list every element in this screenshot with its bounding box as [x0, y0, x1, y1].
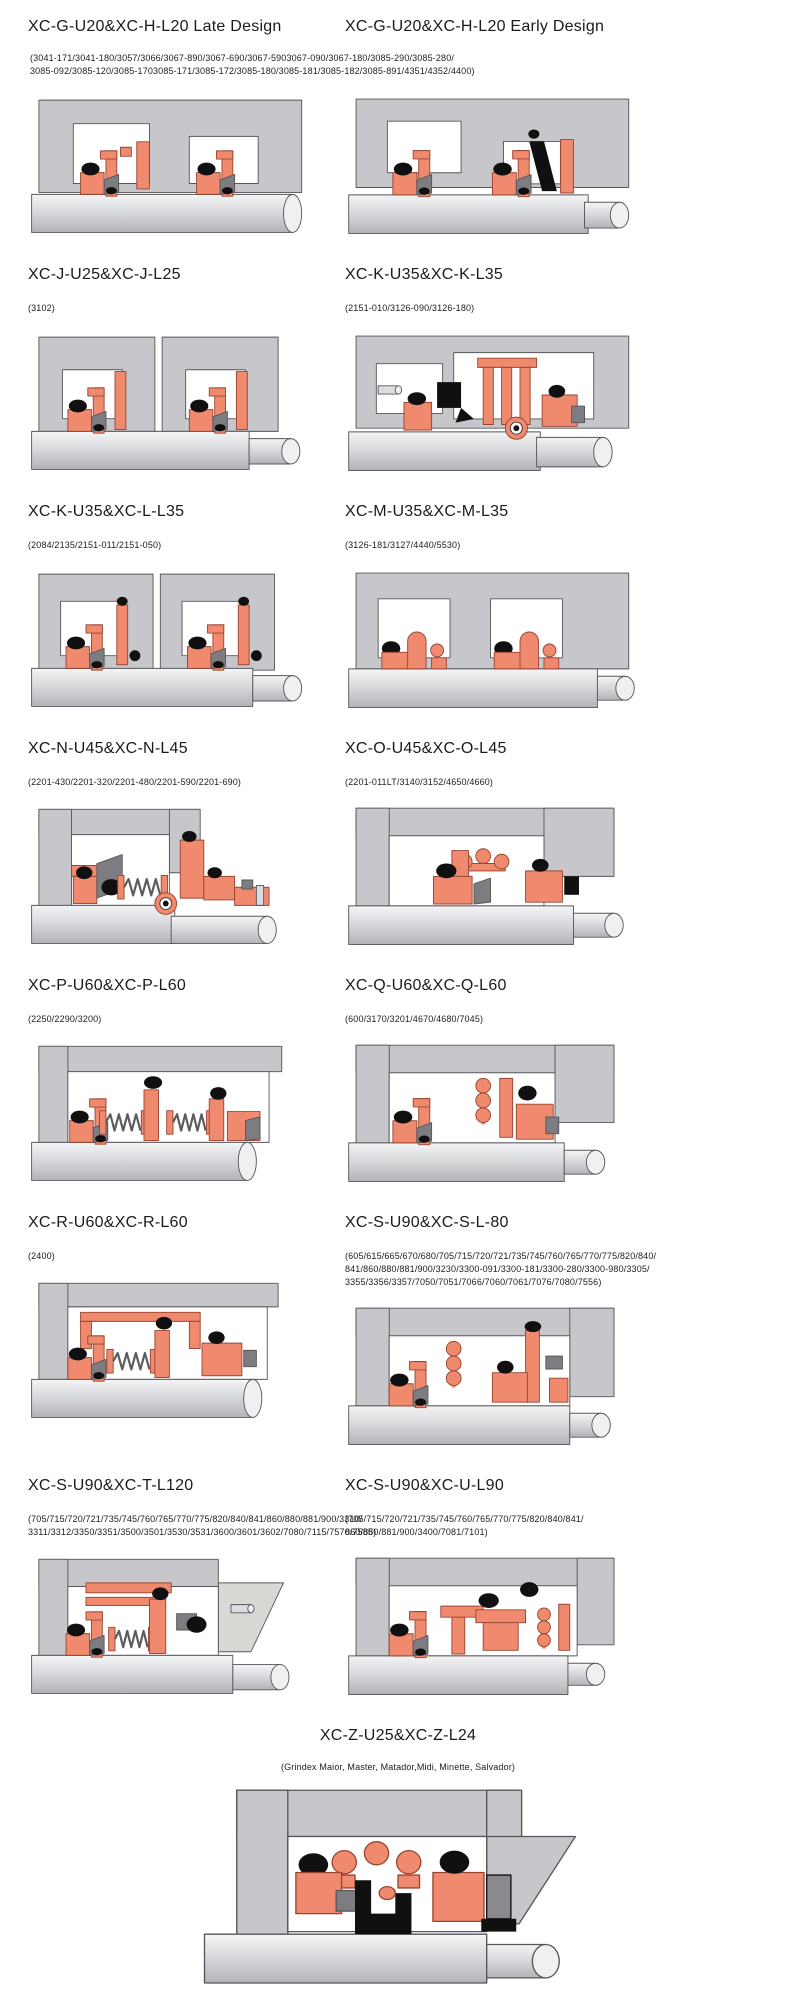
catalog-page: XC-G-U20&XC-H-L20 Late DesignXC-G-U20&XC…	[0, 0, 796, 2012]
seal-xc-u-diagram	[345, 1549, 685, 1701]
section-title: XC-G-U20&XC-H-L20 Late Design	[28, 18, 337, 36]
seal-cross-section	[0, 1780, 796, 1992]
part-numbers: (2151-010/3126-090/3126-180)	[345, 302, 796, 315]
part-numbers: (705/715/720/721/735/745/760/765/770/775…	[345, 1513, 796, 1539]
part-numbers-line: (705/715/720/721/735/745/760/765/770/775…	[28, 1513, 337, 1526]
seal-cross-section	[28, 88, 337, 240]
seal-section-row: XC-G-U20&XC-H-L20 Late DesignXC-G-U20&XC…	[0, 18, 796, 240]
section-title: XC-K-U35&XC-K-L35	[345, 266, 796, 284]
section-title: XC-P-U60&XC-P-L60	[28, 977, 337, 995]
seal-section-row: XC-Z-U25&XC-Z-L24(Grindex Maior, Master,…	[0, 1727, 796, 1992]
part-numbers-line: (2151-010/3126-090/3126-180)	[345, 302, 796, 315]
seal-cross-section	[345, 1036, 796, 1188]
seal-cross-section	[345, 1299, 796, 1451]
seal-section: XC-K-U35&XC-K-L35(2151-010/3126-090/3126…	[337, 266, 796, 477]
seal-cross-section	[345, 325, 796, 477]
part-numbers: (3102)	[28, 302, 337, 315]
part-numbers: (3126-181/3127/4440/5530)	[345, 539, 796, 552]
seal-cross-section	[28, 562, 337, 714]
seal-xc-g-late-diagram	[28, 88, 318, 240]
part-numbers: (705/715/720/721/735/745/760/765/770/775…	[28, 1513, 337, 1539]
seal-section: XC-J-U25&XC-J-L25(3102)	[28, 266, 337, 477]
seal-cross-section	[28, 1549, 337, 1701]
section-title: XC-S-U90&XC-S-L-80	[345, 1214, 796, 1232]
seal-xc-j-diagram	[28, 325, 318, 477]
seal-cross-section	[28, 325, 337, 477]
seal-section: XC-P-U60&XC-P-L60(2250/2290/3200)	[28, 977, 337, 1188]
seal-xc-n-diagram	[28, 799, 318, 951]
seal-section-row: XC-J-U25&XC-J-L25(3102)XC-K-U35&XC-K-L35…	[0, 266, 796, 477]
part-numbers-line: (605/615/665/670/680/705/715/720/721/735…	[345, 1250, 796, 1263]
part-numbers-line: (2201-430/2201-320/2201-480/2201-590/220…	[28, 776, 337, 789]
part-numbers: (2201-011LT/3140/3152/4650/4660)	[345, 776, 796, 789]
part-numbers-line: (705/715/720/721/735/745/760/765/770/775…	[345, 1513, 796, 1526]
part-numbers-line: (2201-011LT/3140/3152/4650/4660)	[345, 776, 796, 789]
part-numbers-line: (Grindex Maior, Master, Matador,Midi, Mi…	[0, 1761, 796, 1774]
seal-xc-m-diagram	[345, 562, 685, 714]
seal-section-row: XC-S-U90&XC-T-L120(705/715/720/721/735/7…	[0, 1477, 796, 1701]
part-numbers: (2400)	[28, 1250, 337, 1263]
seal-xc-l-diagram	[28, 562, 318, 714]
seal-section: XC-N-U45&XC-N-L45(2201-430/2201-320/2201…	[28, 740, 337, 951]
seal-xc-z-diagram	[183, 1780, 613, 1992]
seal-section: XC-Q-U60&XC-Q-L60(600/3170/3201/4670/468…	[337, 977, 796, 1188]
section-title: XC-G-U20&XC-H-L20 Early Design	[345, 18, 796, 36]
part-numbers-line: 3355/3356/3357/7050/7051/7066/7060/7061/…	[345, 1276, 796, 1289]
section-title: XC-S-U90&XC-U-L90	[345, 1477, 796, 1495]
part-numbers-line: (2084/2135/2151-011/2151-050)	[28, 539, 337, 552]
section-title: XC-N-U45&XC-N-L45	[28, 740, 337, 758]
seal-xc-q-diagram	[345, 1036, 685, 1188]
seal-section-row: XC-K-U35&XC-L-L35(2084/2135/2151-011/215…	[0, 503, 796, 714]
seal-xc-r-diagram	[28, 1273, 318, 1425]
seal-section: XC-Z-U25&XC-Z-L24(Grindex Maior, Master,…	[0, 1727, 796, 1992]
seal-section-row: XC-R-U60&XC-R-L60(2400)XC-S-U90&XC-S-L-8…	[0, 1214, 796, 1451]
part-numbers: (2084/2135/2151-011/2151-050)	[28, 539, 337, 552]
seal-xc-k-diagram	[345, 325, 685, 477]
section-title: XC-J-U25&XC-J-L25	[28, 266, 337, 284]
part-numbers-line: (3126-181/3127/4440/5530)	[345, 539, 796, 552]
seal-section: XC-M-U35&XC-M-L35(3126-181/3127/4440/553…	[337, 503, 796, 714]
seal-section: XC-R-U60&XC-R-L60(2400)	[28, 1214, 337, 1451]
part-numbers-line: 3085-092/3085-120/3085-1703085-171/3085-…	[30, 65, 796, 78]
section-title: XC-R-U60&XC-R-L60	[28, 1214, 337, 1232]
part-numbers: (600/3170/3201/4670/4680/7045)	[345, 1013, 796, 1026]
seal-xc-g-early-diagram	[345, 88, 685, 240]
seal-cross-section	[345, 1549, 796, 1701]
part-numbers-line: (2400)	[28, 1250, 337, 1263]
part-numbers-line: 3311/3312/3350/3351/3500/3501/3530/3531/…	[28, 1526, 337, 1539]
part-numbers-line: 841/860/880/881/900/3230/3300-091/3300-1…	[345, 1263, 796, 1276]
seal-cross-section	[345, 799, 796, 951]
section-title: XC-Q-U60&XC-Q-L60	[345, 977, 796, 995]
part-numbers-line: 860/880/881/900/3400/7081/7101)	[345, 1526, 796, 1539]
section-title: XC-S-U90&XC-T-L120	[28, 1477, 337, 1495]
seal-cross-section	[345, 562, 796, 714]
part-numbers: (2201-430/2201-320/2201-480/2201-590/220…	[28, 776, 337, 789]
seal-cross-section	[28, 1036, 337, 1188]
section-title: XC-K-U35&XC-L-L35	[28, 503, 337, 521]
part-numbers-line: (600/3170/3201/4670/4680/7045)	[345, 1013, 796, 1026]
part-numbers: (Grindex Maior, Master, Matador,Midi, Mi…	[0, 1761, 796, 1774]
seal-section: XC-K-U35&XC-L-L35(2084/2135/2151-011/215…	[28, 503, 337, 714]
seal-section: XC-S-U90&XC-T-L120(705/715/720/721/735/7…	[28, 1477, 337, 1701]
section-title: XC-M-U35&XC-M-L35	[345, 503, 796, 521]
seal-cross-section	[345, 88, 796, 240]
seal-cross-section	[28, 1273, 337, 1425]
seal-cross-section	[28, 799, 337, 951]
part-numbers: (3041-171/3041-180/3057/3066/3067-890/30…	[0, 52, 796, 78]
part-numbers-line: (2250/2290/3200)	[28, 1013, 337, 1026]
part-numbers-line: (3102)	[28, 302, 337, 315]
part-numbers: (2250/2290/3200)	[28, 1013, 337, 1026]
seal-xc-s-l80-diagram	[345, 1299, 685, 1451]
section-title: XC-Z-U25&XC-Z-L24	[0, 1727, 796, 1745]
seal-xc-t-diagram	[28, 1549, 318, 1701]
seal-section-row: XC-N-U45&XC-N-L45(2201-430/2201-320/2201…	[0, 740, 796, 951]
seal-xc-o-diagram	[345, 799, 685, 951]
seal-section: XC-O-U45&XC-O-L45(2201-011LT/3140/3152/4…	[337, 740, 796, 951]
seal-section: XC-S-U90&XC-S-L-80(605/615/665/670/680/7…	[337, 1214, 796, 1451]
seal-xc-p-diagram	[28, 1036, 318, 1188]
seal-section: XC-S-U90&XC-U-L90(705/715/720/721/735/74…	[337, 1477, 796, 1701]
seal-section-row: XC-P-U60&XC-P-L60(2250/2290/3200)XC-Q-U6…	[0, 977, 796, 1188]
part-numbers: (605/615/665/670/680/705/715/720/721/735…	[345, 1250, 796, 1289]
section-title: XC-O-U45&XC-O-L45	[345, 740, 796, 758]
